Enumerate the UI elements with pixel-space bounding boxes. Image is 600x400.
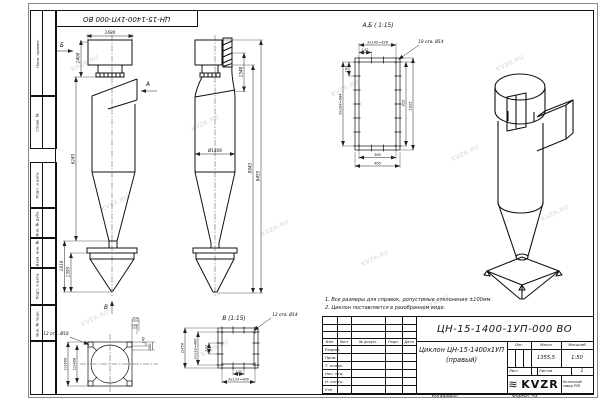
view-arrow-a-label: А bbox=[145, 82, 150, 88]
isometric-view bbox=[484, 74, 573, 299]
view-v-outline bbox=[217, 327, 260, 370]
dim-8943: 8943 bbox=[248, 162, 253, 173]
tb-doc-number: ЦН-15-1400-1УП-000 ВО bbox=[416, 317, 593, 341]
tb-row-nachotd: Нач. отд. bbox=[323, 369, 353, 377]
format-label: Формат А3 bbox=[512, 394, 538, 399]
dim-chain-top: 3х142=426 bbox=[367, 41, 389, 45]
dim-sq-450: □450 bbox=[181, 342, 185, 353]
dim-465: 465 bbox=[374, 162, 382, 166]
tb-row-tkontr: Т. контр. bbox=[323, 361, 353, 369]
tb-col-izm: Изм. bbox=[323, 338, 337, 345]
dim-1025: 1025 bbox=[409, 101, 413, 111]
dim-1548: 1548 bbox=[239, 66, 244, 77]
drawing-sheet: KVZR.RU KVZR.RU KVZR.RU KVZR.RU KVZR.RU … bbox=[0, 0, 600, 400]
dim-9455: 9455 bbox=[256, 170, 261, 181]
tb-col-doc: № докум. bbox=[351, 338, 385, 345]
note-1: 1. Все размеры для справок, допустимые о… bbox=[325, 297, 492, 303]
dim-chain-bottom-v: 3х133=400 bbox=[228, 378, 250, 382]
tb-title-line1: Циклон ЦН-15-1400х1УП bbox=[416, 345, 507, 355]
dim-200: 200 bbox=[132, 317, 140, 321]
view-arrow-b-label: Б bbox=[60, 43, 64, 49]
dim-300: 300 bbox=[148, 343, 152, 351]
tb-sheet-label: Лист bbox=[507, 367, 539, 375]
section-ab-title: А,Б ( 1:15) bbox=[361, 23, 393, 29]
tb-col-list: Лист bbox=[337, 338, 351, 345]
dim-6245: 6245 bbox=[71, 153, 76, 164]
dim-1400: 1400 bbox=[76, 52, 81, 63]
dim-chain-left: 6х164=984 bbox=[339, 93, 343, 115]
tb-lit-label: Лит. bbox=[507, 341, 531, 349]
dim-133-v: 133 bbox=[205, 344, 209, 352]
title-block: Изм. Лист № докум. Подп. Дата Разраб. Пр… bbox=[322, 316, 594, 394]
tb-row-utv: Утв. bbox=[323, 385, 353, 393]
copied-label: Копировал bbox=[432, 394, 458, 399]
kvzr-logo: KVZR bbox=[519, 375, 561, 393]
section-ab-outline bbox=[354, 57, 402, 152]
dim-145: 145 bbox=[142, 336, 146, 344]
dim-133-h: 133 bbox=[235, 370, 243, 374]
holes-note-12-18: 12 отв. Ø18 bbox=[43, 331, 69, 336]
dim-chain-left-v: 3х133=400 bbox=[194, 338, 198, 360]
tb-col-podp: Подп. bbox=[385, 338, 402, 345]
tb-scale-label: Масштаб bbox=[561, 341, 593, 349]
dim-140: 140 bbox=[131, 324, 139, 328]
dim-1680: 1680 bbox=[105, 30, 116, 35]
tb-title-line2: (правый) bbox=[416, 355, 507, 365]
spring-icon: ≋ bbox=[507, 375, 519, 393]
tb-mass-label: Масса bbox=[531, 341, 561, 349]
company-name: Котельный завод РЭП bbox=[563, 375, 593, 393]
view-v-title: В (1:15) bbox=[222, 316, 245, 322]
tb-row-nkontr: Н. контр. bbox=[323, 377, 353, 385]
dim-sq-1408: □1408 bbox=[73, 357, 77, 370]
dim-1395: 1395 bbox=[66, 266, 71, 277]
company-line2: завод РЭП bbox=[563, 384, 580, 388]
tb-scale-value: 1:50 bbox=[561, 349, 593, 367]
dim-142: 142 bbox=[362, 48, 370, 52]
dim-925: 925 bbox=[402, 99, 406, 107]
note-2: 2. Циклон поставляется в разобранном вид… bbox=[325, 305, 445, 311]
tb-sheets-value: 1 bbox=[571, 367, 593, 375]
tb-mass-value: 1355,5 bbox=[531, 349, 561, 367]
dim-sq-1606: □1606 bbox=[64, 357, 68, 370]
tb-row-razrab: Разраб. bbox=[323, 345, 353, 353]
holes-note-18: 18 отв. Ø14 bbox=[418, 39, 444, 44]
dim-164: 164 bbox=[345, 65, 349, 73]
holes-note-12-14: 12 отв. Ø14 bbox=[272, 312, 298, 317]
view-b-arrow-label: В bbox=[104, 305, 108, 311]
dim-diameter-1408: Ø1408 bbox=[207, 148, 222, 153]
tb-row-prov: Пров. bbox=[323, 353, 353, 361]
dim-365: 365 bbox=[374, 153, 382, 157]
dim-1810: 1810 bbox=[59, 260, 64, 271]
tb-sheets-label: Листов bbox=[537, 367, 573, 375]
tb-col-data: Дата bbox=[402, 338, 416, 345]
